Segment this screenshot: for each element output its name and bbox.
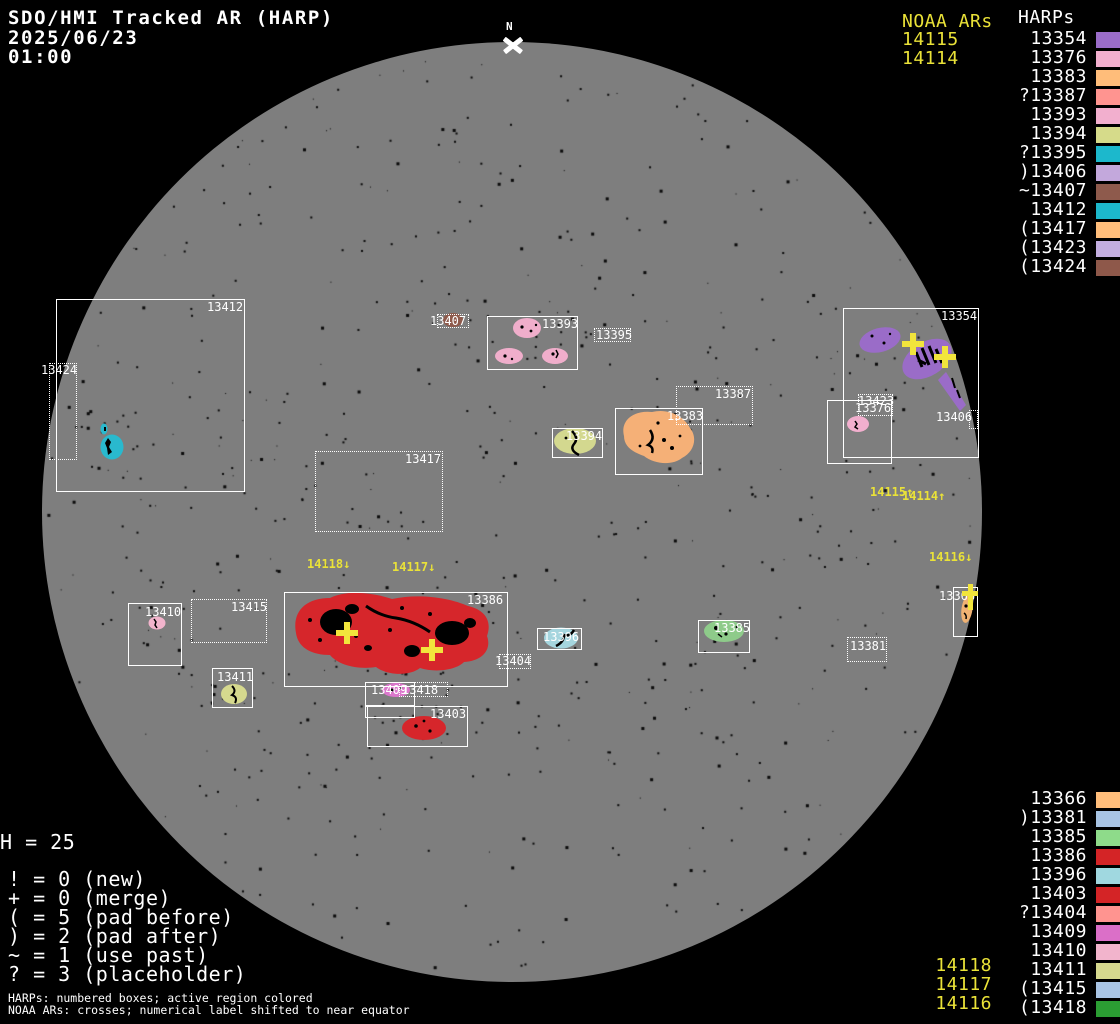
harp-box-label-13387: 13387 <box>715 388 751 401</box>
harp-list-item-13383: 13383 <box>1030 67 1087 86</box>
harp-count: H = 25 <box>0 830 75 854</box>
harp-box-label-13403: 13403 <box>430 708 466 721</box>
harp-list-item-13381: )13381 <box>1019 808 1087 827</box>
harp-list-item-13403: 13403 <box>1030 884 1087 903</box>
harp-color-swatch-13376 <box>1096 51 1120 67</box>
harp-list-item-13409: 13409 <box>1030 922 1087 941</box>
harp-box-label-13381: 13381 <box>850 640 886 653</box>
noaa-cross <box>934 346 956 368</box>
harp-list-item-13423: (13423 <box>1019 238 1087 257</box>
noaa-ar-item-14116: 14116 <box>935 994 992 1013</box>
harp-list-item-13417: (13417 <box>1019 219 1087 238</box>
harp-color-swatch-13423 <box>1096 241 1120 257</box>
noaa-disk-label-14117: 14117↓ <box>392 561 435 574</box>
harp-box-label-13393: 13393 <box>542 318 578 331</box>
harp-box-label-13412: 13412 <box>207 301 243 314</box>
harp-list-item-13376: 13376 <box>1030 48 1087 67</box>
harp-box-label-13354: 13354 <box>941 310 977 323</box>
harp-color-swatch-13410 <box>1096 944 1120 960</box>
harp-box-label-13386: 13386 <box>467 594 503 607</box>
harp-list-item-13366: 13366 <box>1030 789 1087 808</box>
time-label: 01:00 <box>8 46 73 68</box>
noaa-cross <box>962 584 978 610</box>
harp-list-item-13386: 13386 <box>1030 846 1087 865</box>
harp-list-item-13424: (13424 <box>1019 257 1087 276</box>
harp-list-item-13394: 13394 <box>1030 124 1087 143</box>
harp-box-label-13385: 13385 <box>714 622 750 635</box>
harp-color-swatch-13424 <box>1096 260 1120 276</box>
harp-color-swatch-13354 <box>1096 32 1120 48</box>
harp-list-item-13410: 13410 <box>1030 941 1087 960</box>
harp-color-swatch-13406 <box>1096 165 1120 181</box>
footer-noaa-note: NOAA ARs: crosses; numerical label shift… <box>8 1003 410 1017</box>
harp-list-item-13396: 13396 <box>1030 865 1087 884</box>
harp-color-swatch-13409 <box>1096 925 1120 941</box>
harp-list-item-13393: 13393 <box>1030 105 1087 124</box>
noaa-cross <box>421 639 443 661</box>
harp-list-item-13407: ~13407 <box>1019 181 1087 200</box>
harp-box-label-13383: 13383 <box>667 410 703 423</box>
harp-color-swatch-13387 <box>1096 89 1120 105</box>
harp-box-label-13411: 13411 <box>217 671 253 684</box>
harp-box-label-13410: 13410 <box>145 606 181 619</box>
harp-box-label-13395: 13395 <box>596 329 632 342</box>
harp-color-swatch-13385 <box>1096 830 1120 846</box>
harp-box-label-13418: 13418 <box>402 684 438 697</box>
harp-map-stage: SDO/HMI Tracked AR (HARP) 2025/06/23 01:… <box>0 0 1120 1024</box>
legend-line-5: ? = 3 (placeholder) <box>8 962 246 986</box>
harp-color-swatch-13403 <box>1096 887 1120 903</box>
harp-color-swatch-13383 <box>1096 70 1120 86</box>
harp-list-item-13395: ?13395 <box>1019 143 1087 162</box>
harp-color-swatch-13407 <box>1096 184 1120 200</box>
harp-box-label-13396: 13396 <box>543 631 579 644</box>
harp-color-swatch-13386 <box>1096 849 1120 865</box>
noaa-ar-item-14118: 14118 <box>935 956 992 975</box>
harp-box-label-13423: 13423 <box>858 395 894 408</box>
harp-box-label-13424: 13424 <box>41 364 77 377</box>
harp-box-label-13394: 13394 <box>566 430 602 443</box>
harp-box-13412 <box>56 299 245 492</box>
harp-list-item-13418: (13418 <box>1019 998 1087 1017</box>
harp-color-swatch-13396 <box>1096 868 1120 884</box>
noaa-ar-item-14115: 14115 <box>902 30 959 49</box>
noaa-disk-label-14116: 14116↓ <box>929 551 972 564</box>
harp-list-item-13354: 13354 <box>1030 29 1087 48</box>
harp-color-swatch-13404 <box>1096 906 1120 922</box>
app-title: SDO/HMI Tracked AR (HARP) <box>8 7 334 29</box>
harp-list-item-13404: ?13404 <box>1019 903 1087 922</box>
noaa-cross <box>902 333 924 355</box>
harp-box-label-13404: 13404 <box>495 655 531 668</box>
harp-color-swatch-13366 <box>1096 792 1120 808</box>
north-label: N <box>506 20 513 33</box>
harp-color-swatch-13394 <box>1096 127 1120 143</box>
harp-color-swatch-13411 <box>1096 963 1120 979</box>
noaa-disk-label-14118: 14118↓ <box>307 558 350 571</box>
harp-list-item-13406: )13406 <box>1019 162 1087 181</box>
harp-list-item-13385: 13385 <box>1030 827 1087 846</box>
harp-list-item-13412: 13412 <box>1030 200 1087 219</box>
harp-box-label-13407: 13407 <box>430 315 466 328</box>
harp-color-swatch-13381 <box>1096 811 1120 827</box>
harp-color-swatch-13412 <box>1096 203 1120 219</box>
noaa-ar-item-14117: 14117 <box>935 975 992 994</box>
active-regions-layer <box>0 0 1120 1024</box>
harp-color-swatch-13393 <box>1096 108 1120 124</box>
harp-box-label-13415: 13415 <box>231 601 267 614</box>
harp-box-label-13406: 13406 <box>936 411 972 424</box>
harp-color-swatch-13417 <box>1096 222 1120 238</box>
harp-list-item-13387: ?13387 <box>1019 86 1087 105</box>
harp-color-swatch-13395 <box>1096 146 1120 162</box>
harps-title: HARPs <box>1018 7 1075 28</box>
noaa-cross <box>336 622 358 644</box>
harp-box-13424 <box>49 363 77 460</box>
harp-list-item-13415: (13415 <box>1019 979 1087 998</box>
north-pole-marker <box>503 36 523 54</box>
harp-color-swatch-13415 <box>1096 982 1120 998</box>
noaa-ar-item-14114: 14114 <box>902 49 959 68</box>
harp-color-swatch-13418 <box>1096 1001 1120 1017</box>
noaa-disk-label-14114: 14114↑ <box>902 490 945 503</box>
harp-list-item-13411: 13411 <box>1030 960 1087 979</box>
harp-box-label-13417: 13417 <box>405 453 441 466</box>
